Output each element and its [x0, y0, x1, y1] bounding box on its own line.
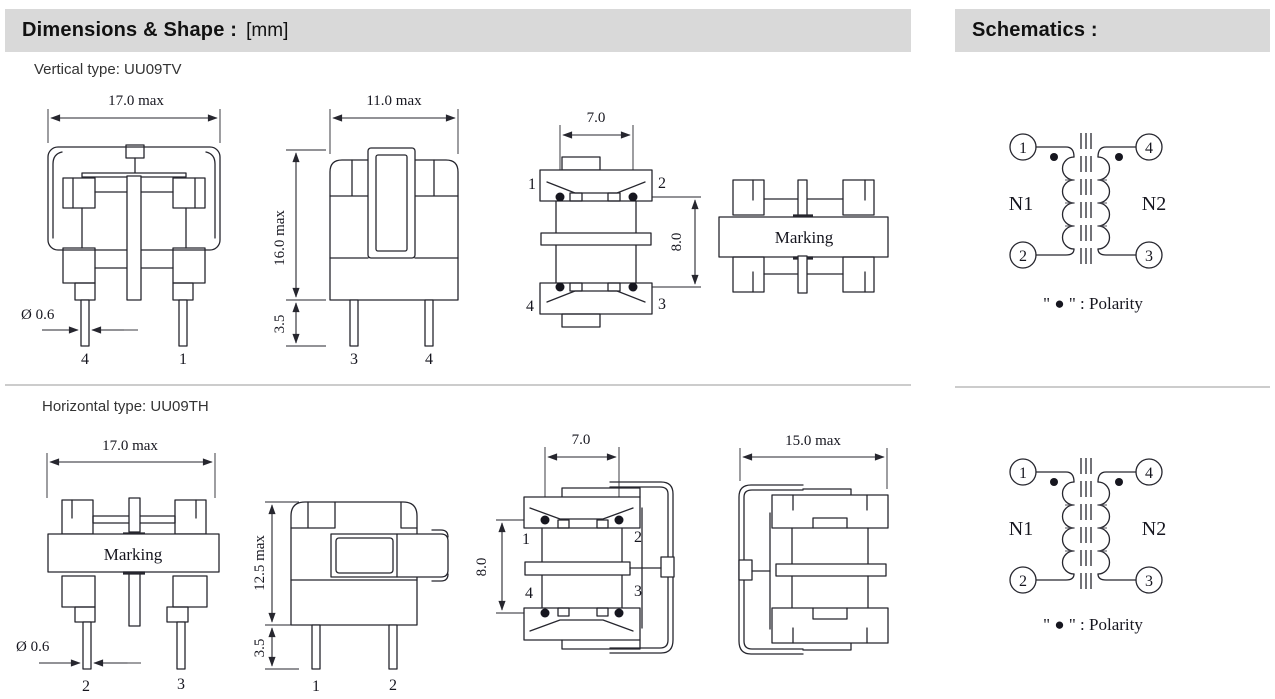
schematic-h-pin3-label: 3 [1145, 573, 1153, 590]
h-front-dim-lines [47, 453, 215, 498]
h-side-outline [291, 502, 448, 669]
h-top-outline [772, 495, 888, 643]
h-front-pin-diameter-dim: Ø 0.6 [16, 639, 50, 655]
h-bottom-pin4-label: 4 [525, 585, 533, 602]
schematic-h-winding-n2-label: N2 [1142, 518, 1166, 540]
v-front-outline [48, 145, 220, 346]
v-bottom-dim-lines [560, 125, 701, 287]
polarity-note-vertical: " ● " : Polarity [998, 294, 1188, 314]
schematic-h-winding-n1-label: N1 [1009, 518, 1033, 540]
schematic-v-winding-n1-label: N1 [1009, 193, 1033, 215]
h-front-pin2-label: 2 [82, 678, 90, 695]
vertical-front-view: 17.0 max Ø 0.6 [20, 88, 255, 370]
v-front-dim-lines [48, 109, 220, 143]
h-front-width-dim: 17.0 max [102, 438, 158, 454]
horizontal-front-marking-view: 17.0 max Marking Ø 0.6 [15, 430, 255, 699]
v-bottom-pin1-label: 1 [528, 176, 536, 193]
schematic-h-core [1081, 458, 1091, 592]
schematic-v-pin1-label: 1 [1019, 140, 1027, 157]
v-bottom-pitch-dim: 7.0 [587, 110, 606, 126]
v-side-pin3-label: 3 [350, 351, 358, 368]
schematic-h-pin2-label: 2 [1019, 573, 1027, 590]
v-side-pin-length-dim: 3.5 [272, 315, 288, 334]
h-side-pin1-label: 1 [312, 678, 320, 695]
h-bottom-row-dim: 8.0 [474, 558, 490, 577]
horizontal-side-view: 12.5 max 3.5 1 2 [255, 430, 467, 699]
h-side-pin2-label: 2 [389, 677, 397, 694]
v-side-depth-dim: 11.0 max [366, 93, 422, 109]
schematic-v-pin4-label: 4 [1145, 140, 1153, 157]
transformer-schematic-horizontal: 1 4 2 3 N1 N2 [988, 442, 1178, 602]
polarity-note-horizontal: " ● " : Polarity [998, 615, 1188, 635]
vertical-bottom-view: 7.0 8.0 1 2 [505, 95, 710, 345]
h-front-outline [48, 498, 219, 669]
dimensions-header-unit: [mm] [246, 20, 288, 42]
schematic-v-core [1081, 133, 1091, 267]
horizontal-top-view: 15.0 max [710, 425, 922, 677]
schematic-h-pin1-label: 1 [1019, 465, 1027, 482]
horizontal-bottom-view: 7.0 8.0 [470, 420, 704, 672]
schematic-v-winding-n2-label: N2 [1142, 193, 1166, 215]
section-divider-left [5, 384, 911, 386]
v-side-outline [330, 148, 458, 346]
h-front-marking-label: Marking [104, 545, 163, 564]
dimensions-header-title: Dimensions & Shape : [22, 19, 237, 42]
h-bottom-outline [524, 488, 661, 649]
v-front-pin4-label: 4 [81, 351, 89, 368]
h-bottom-pitch-dim: 7.0 [572, 432, 591, 448]
section-divider-right [955, 386, 1270, 388]
v-side-height-dim: 16.0 max [272, 210, 288, 266]
v-bottom-pin4-label: 4 [526, 298, 534, 315]
h-top-width-dim: 15.0 max [785, 433, 841, 449]
v-bottom-pin3-label: 3 [658, 296, 666, 313]
h-bottom-pin2-label: 2 [634, 529, 642, 546]
schematics-header-title: Schematics : [972, 19, 1098, 42]
v-bottom-row-dim: 8.0 [669, 233, 685, 252]
h-front-pin3-label: 3 [177, 676, 185, 693]
horizontal-type-label: Horizontal type: UU09TH [42, 398, 209, 415]
schematic-v-pin3-label: 3 [1145, 248, 1153, 265]
v-side-pin4-label: 4 [425, 351, 433, 368]
v-top-marking-label: Marking [775, 228, 834, 247]
datasheet-page: Dimensions & Shape : [mm] Schematics : V… [0, 0, 1275, 699]
vertical-top-marking-view: Marking [700, 150, 912, 322]
schematic-h-pin4-label: 4 [1145, 465, 1153, 482]
v-bottom-pin2-label: 2 [658, 175, 666, 192]
schematic-v-pin2-label: 2 [1019, 248, 1027, 265]
schematics-header: Schematics : [955, 9, 1270, 52]
h-side-dim-lines [265, 502, 299, 669]
h-bottom-dim-lines [496, 447, 619, 613]
v-front-pin1-label: 1 [179, 351, 187, 368]
h-side-height-dim: 12.5 max [252, 535, 268, 591]
v-front-pin-diameter-dim: Ø 0.6 [21, 307, 55, 323]
h-bottom-pin3-label: 3 [634, 583, 642, 600]
h-top-dim-lines [740, 448, 887, 489]
vertical-type-label: Vertical type: UU09TV [34, 61, 182, 78]
v-front-width-dim: 17.0 max [108, 93, 164, 109]
dimensions-header: Dimensions & Shape : [mm] [5, 9, 911, 52]
transformer-schematic-vertical: 1 4 2 3 N1 N2 [988, 117, 1178, 277]
vertical-side-view: 11.0 max 16.0 max 3.5 3 4 [268, 88, 480, 370]
v-bottom-outline [540, 157, 652, 327]
h-side-pin-length-dim: 3.5 [252, 639, 268, 658]
h-bottom-pin1-label: 1 [522, 531, 530, 548]
